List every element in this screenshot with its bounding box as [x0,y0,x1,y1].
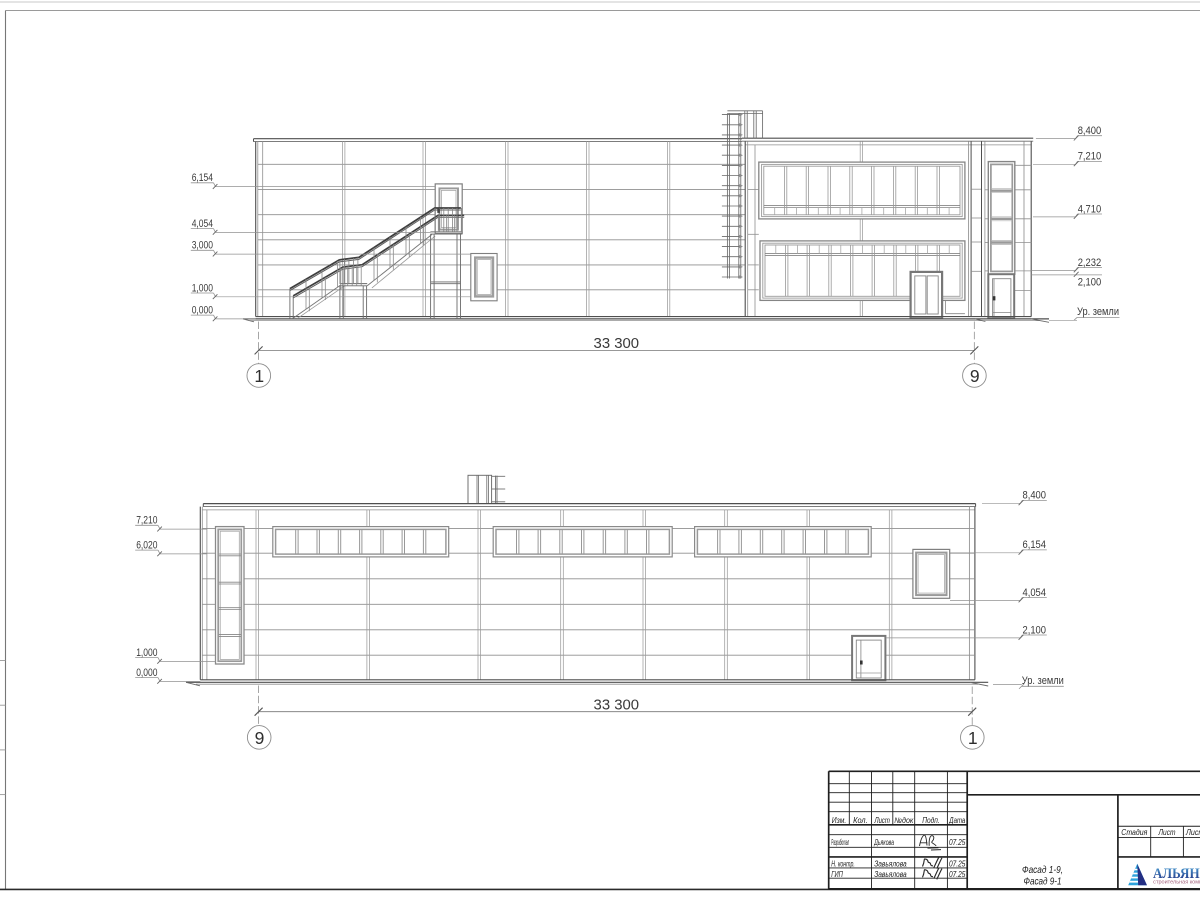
svg-text:№док: №док [894,816,914,825]
svg-text:1,000: 1,000 [136,647,157,659]
svg-text:07.25: 07.25 [949,869,966,879]
svg-text:4,054: 4,054 [192,218,213,230]
svg-text:2,100: 2,100 [1023,624,1047,636]
svg-text:07.25: 07.25 [949,837,966,847]
svg-text:Ур. земли: Ур. земли [1077,306,1119,318]
svg-text:Лист: Лист [874,816,890,825]
svg-text:2,232: 2,232 [1078,257,1102,269]
svg-text:Завьялова: Завьялова [874,858,907,868]
svg-text:33 300: 33 300 [594,336,640,352]
svg-text:4,054: 4,054 [1023,587,1047,599]
svg-text:Дата: Дата [949,816,966,825]
svg-text:Изм.: Изм. [832,816,847,825]
svg-text:7,210: 7,210 [136,515,157,527]
svg-text:1: 1 [254,366,264,386]
svg-text:Лист: Лист [1158,827,1176,837]
svg-text:9: 9 [970,366,980,386]
svg-text:2,100: 2,100 [1078,277,1102,289]
svg-text:1: 1 [968,728,978,748]
svg-text:Ур. земли: Ур. земли [1022,675,1064,687]
svg-text:Стадия: Стадия [1121,827,1147,837]
svg-text:Н. контр.: Н. контр. [831,858,855,868]
svg-text:3,000: 3,000 [192,240,213,252]
svg-text:Дьякова: Дьякова [874,837,895,847]
svg-text:6,154: 6,154 [1023,539,1047,551]
svg-text:8,400: 8,400 [1023,490,1047,502]
svg-text:Фасад 1-9,: Фасад 1-9, [1022,864,1063,876]
svg-text:4,710: 4,710 [1078,203,1102,215]
svg-text:7,210: 7,210 [1078,151,1102,163]
svg-text:ГИП: ГИП [831,869,843,879]
svg-text:Завьялова: Завьялова [874,869,907,879]
svg-text:6,154: 6,154 [192,172,213,184]
svg-text:0,000: 0,000 [192,304,213,316]
svg-text:Подп.: Подп. [922,816,940,825]
svg-text:9: 9 [255,728,265,748]
svg-text:0,000: 0,000 [136,667,157,679]
svg-text:Разработал: Разработал [831,837,849,847]
svg-text:07.25: 07.25 [949,858,966,868]
svg-text:Листов: Листов [1185,827,1200,837]
svg-text:33 300: 33 300 [594,698,640,714]
svg-text:6,020: 6,020 [136,539,157,551]
svg-text:Фасад 9-1: Фасад 9-1 [1024,875,1062,887]
svg-text:1,000: 1,000 [192,282,213,294]
svg-text:8,400: 8,400 [1078,125,1102,137]
svg-text:Кол.: Кол. [853,816,868,825]
svg-text:строительная компания: строительная компания [1153,880,1200,886]
